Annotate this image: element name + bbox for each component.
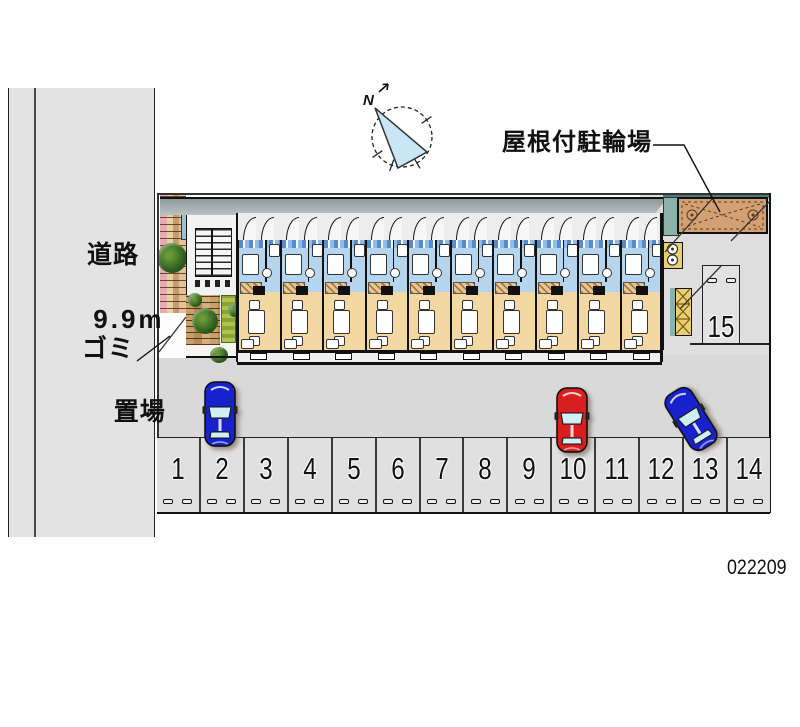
entry-door-arc [413,217,426,240]
parking-space-number: 10 [557,451,590,487]
plan-number: 022209 [727,556,787,580]
entry-door-arc [626,217,639,240]
ac-unit-mark [250,353,267,360]
apartment-unit [237,240,280,350]
entry-door-arc [431,217,444,240]
parking-space-number: 14 [733,451,766,487]
parking-space-number: 7 [425,451,458,487]
staircase [195,228,232,277]
apartment-unit [280,240,323,350]
parking-space-15: 15 [702,265,740,343]
parking-space-4: 4 [287,438,331,512]
parking-space-8: 8 [462,438,506,512]
apartment-unit [535,240,578,350]
entry-door-arc [516,217,529,240]
site-boundary-north [157,193,770,195]
entry-door-arc [583,217,596,240]
parking-space-number: 15 [707,309,735,345]
ac-unit-mark [548,353,565,360]
parking-space-number: 1 [162,451,195,487]
parking-space-number: 4 [293,451,326,487]
parking-space-number: 6 [381,451,414,487]
utility-meters [663,242,683,269]
ac-unit-mark [505,353,522,360]
entry-door-arc [456,217,469,240]
entry-door-arc [498,217,511,240]
covered-bicycle-parking-label: 屋根付駐輪場 [502,128,652,158]
apartment-unit [577,240,620,350]
entry-door-arc [346,217,359,240]
parking-space-14: 14 [726,438,770,512]
apartment-unit [365,240,408,350]
covered-bicycle-shed [677,197,768,234]
building-units [237,240,664,350]
apartment-unit [407,240,450,350]
bush [188,293,202,307]
parking-space-number: 12 [645,451,678,487]
entry-door-arc [371,217,384,240]
exterior-steps [675,288,692,336]
balcony-strip [237,353,662,362]
entry-door-arc [601,217,614,240]
road-label: 道路 9.9m [58,240,168,336]
parking-space-7: 7 [419,438,463,512]
garbage-label: ゴミ 置場 [82,334,166,428]
ac-unit-mark [335,353,352,360]
parking-space-number: 3 [249,451,282,487]
apartment-unit [620,240,663,350]
bush [210,347,228,363]
parking-space-5: 5 [331,438,375,512]
parking-space-number: 2 [206,451,239,487]
ac-unit-mark [633,353,650,360]
stairwell [186,213,239,297]
parking-space-number: 8 [469,451,502,487]
ac-unit-mark [378,353,395,360]
entry-door-arc [389,217,402,240]
apartment-unit [450,240,493,350]
entry-door-arc [243,217,256,240]
garden [186,295,237,357]
planter-bush [192,308,218,334]
apartment-unit [322,240,365,350]
balcony-edge [237,362,662,365]
entry-door-arc [541,217,554,240]
parking-space-11: 11 [594,438,638,512]
entry-door-arc [328,217,341,240]
building-west-wall [236,213,238,362]
rack-marks [195,280,233,287]
parking-space-9: 9 [506,438,550,512]
ac-unit-mark [420,353,437,360]
entry-door-arc [559,217,572,240]
space15-line [690,343,770,345]
parking-space-number: 5 [337,451,370,487]
entry-door-arc [474,217,487,240]
ac-unit-mark [463,353,480,360]
ac-unit-mark [293,353,310,360]
parking-space-6: 6 [375,438,419,512]
north-label: N [363,92,375,109]
road-center-line [34,88,36,537]
entry-door-arc [286,217,299,240]
parking-space-number: 11 [601,451,634,487]
parking-space-1: 1 [157,438,199,512]
north-arrow-icon [379,84,388,92]
red-car-space-10 [554,386,590,454]
north-compass: N [363,84,432,171]
apartment-unit [492,240,535,350]
building-corridor [237,213,662,241]
entry-door-arc [304,217,317,240]
entry-door-arc [644,217,657,240]
parking-row: 1234567891011121314 [157,437,770,512]
parking-space-number: 9 [513,451,546,487]
parking-space-3: 3 [243,438,287,512]
parking-space-2: 2 [199,438,243,512]
site-plan-canvas: 15 1234567891011121314 N 道路 9.9m ゴミ 置場 屋… [0,0,800,727]
garden-edge [186,356,237,358]
parking-space-12: 12 [638,438,682,512]
entry-door-arc [261,217,274,240]
blue-car-space-2 [202,380,238,448]
staircase-stringer [211,228,213,275]
ac-unit-mark [590,353,607,360]
